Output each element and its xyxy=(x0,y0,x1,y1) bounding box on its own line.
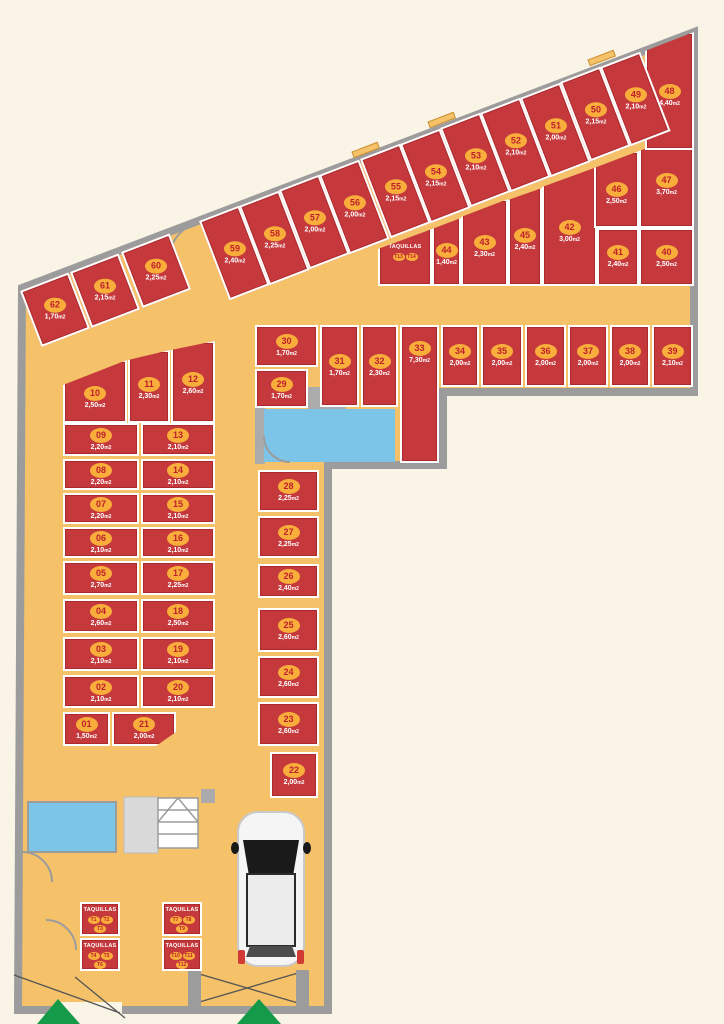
storage-unit-03: 03 2,10m2 xyxy=(63,637,139,671)
unit-size: 2,15m2 xyxy=(95,295,116,303)
storage-unit-18: 18 2,50m2 xyxy=(141,599,215,633)
unit-number-badge: 22 xyxy=(283,763,305,778)
unit-number-badge: 15 xyxy=(167,497,189,512)
unit-size: 2,40m2 xyxy=(515,244,536,252)
locker-tag-badge: T7 xyxy=(170,916,182,924)
unit-number-badge: 61 xyxy=(94,279,116,294)
storage-unit-10: 10 2,50m2 xyxy=(63,360,127,423)
unit-number-badge: 34 xyxy=(449,344,471,359)
storage-unit-02: 02 2,10m2 xyxy=(63,675,139,708)
storage-unit-16: 16 2,10m2 xyxy=(141,527,215,558)
unit-size: 2,25m2 xyxy=(146,275,167,283)
unit-number-badge: 21 xyxy=(133,717,155,732)
locker-tags: T7T8T9 xyxy=(164,916,200,933)
locker-tag-badge: T5 xyxy=(101,952,113,960)
unit-size: 2,00m2 xyxy=(284,779,305,787)
unit-number-badge: 26 xyxy=(278,569,300,584)
unit-number-badge: 24 xyxy=(278,665,300,680)
locker-tag-badge: T2 xyxy=(101,916,113,924)
unit-size: 2,60m2 xyxy=(278,634,299,642)
unit-size: 1,70m2 xyxy=(276,350,297,358)
unit-size: 2,60m2 xyxy=(91,620,112,628)
unit-number-badge: 53 xyxy=(464,148,486,163)
unit-number-badge: 37 xyxy=(577,344,599,359)
unit-number-badge: 40 xyxy=(656,245,678,260)
unit-size: 1,70m2 xyxy=(45,314,66,322)
unit-size: 2,50m2 xyxy=(606,198,627,206)
unit-number-badge: 30 xyxy=(276,334,298,349)
unit-number-badge: 35 xyxy=(491,344,513,359)
unit-number-badge: 51 xyxy=(544,118,566,133)
storage-unit-01: 01 1,50m2 xyxy=(63,712,110,746)
unit-size: 2,10m2 xyxy=(168,696,189,704)
locker-tag-badge: T4 xyxy=(88,952,100,960)
unit-size: 2,25m2 xyxy=(278,495,299,503)
unit-size: 2,60m2 xyxy=(278,728,299,736)
unit-number-badge: 43 xyxy=(474,235,496,250)
unit-size: 2,10m2 xyxy=(168,513,189,521)
unit-size: 2,00m2 xyxy=(304,226,325,234)
unit-number-badge: 32 xyxy=(369,354,391,369)
storage-unit-32: 32 2,30m2 xyxy=(361,325,398,407)
storage-unit-23: 23 2,60m2 xyxy=(258,702,319,746)
storage-unit-09: 09 2,20m2 xyxy=(63,423,139,456)
storage-unit-15: 15 2,10m2 xyxy=(141,493,215,524)
unit-size: 2,50m2 xyxy=(85,402,106,410)
unit-size: 7,30m2 xyxy=(409,357,430,365)
storage-unit-40: 40 2,50m2 xyxy=(639,228,694,286)
unit-size: 2,10m2 xyxy=(662,360,683,368)
storage-unit-22: 22 2,00m2 xyxy=(270,752,318,798)
locker-tag-badge: T9 xyxy=(176,925,188,933)
storage-unit-33: 33 7,30m2 xyxy=(400,325,439,463)
unit-number-badge: 31 xyxy=(329,354,351,369)
storage-unit-44: 44 1,40m2 xyxy=(432,217,461,286)
unit-size: 2,10m2 xyxy=(465,164,486,172)
unit-number-badge: 20 xyxy=(167,680,189,695)
unit-number-badge: 19 xyxy=(167,642,189,657)
unit-number-badge: 28 xyxy=(278,479,300,494)
storage-unit-25: 25 2,60m2 xyxy=(258,608,319,652)
unit-size: 2,25m2 xyxy=(278,541,299,549)
storage-unit-41: 41 2,40m2 xyxy=(597,228,639,286)
unit-size: 2,15m2 xyxy=(425,180,446,188)
storage-unit-13: 13 2,10m2 xyxy=(141,423,215,456)
unit-number-badge: 10 xyxy=(84,386,106,401)
unit-number-badge: 23 xyxy=(278,712,300,727)
unit-size: 2,10m2 xyxy=(168,658,189,666)
unit-number-badge: 55 xyxy=(384,179,406,194)
storage-unit-14: 14 2,10m2 xyxy=(141,459,215,490)
storage-unit-05: 05 2,70m2 xyxy=(63,561,139,595)
locker-tag-badge: T6 xyxy=(94,961,106,969)
unit-number-badge: 25 xyxy=(278,618,300,633)
unit-size: 2,30m2 xyxy=(139,393,160,401)
unit-number-badge: 13 xyxy=(167,428,189,443)
unit-number-badge: 04 xyxy=(90,604,112,619)
locker-tags: T10T11T12 xyxy=(164,952,200,969)
unit-number-badge: 59 xyxy=(223,241,245,256)
unit-number-badge: 49 xyxy=(624,87,646,102)
lockers-title: TAQUILLAS xyxy=(166,943,199,950)
storage-unit-07: 07 2,20m2 xyxy=(63,493,139,524)
unit-number-badge: 52 xyxy=(504,133,526,148)
unit-number-badge: 39 xyxy=(662,344,684,359)
unit-size: 1,70m2 xyxy=(329,370,350,378)
storage-unit-11: 11 2,30m2 xyxy=(128,350,170,423)
storage-unit-04: 04 2,60m2 xyxy=(63,599,139,633)
unit-size: 2,50m2 xyxy=(168,620,189,628)
unit-size: 2,00m2 xyxy=(344,211,365,219)
storage-unit-39: 39 2,10m2 xyxy=(652,325,693,387)
unit-size: 2,10m2 xyxy=(91,658,112,666)
unit-size: 2,40m2 xyxy=(278,585,299,593)
storage-unit-46: 46 2,50m2 xyxy=(594,151,639,228)
unit-size: 4,40m2 xyxy=(659,100,680,108)
lockers-title: TAQUILLAS xyxy=(84,907,117,914)
locker-tag-badge: T1 xyxy=(88,916,100,924)
unit-number-badge: 45 xyxy=(514,228,536,243)
unit-size: 2,00m2 xyxy=(578,360,599,368)
unit-size: 2,10m2 xyxy=(91,547,112,555)
storage-unit-35: 35 2,00m2 xyxy=(481,325,523,387)
unit-size: 2,60m2 xyxy=(278,681,299,689)
unit-number-badge: 09 xyxy=(90,428,112,443)
unit-number-badge: 58 xyxy=(263,226,285,241)
storage-unit-17: 17 2,25m2 xyxy=(141,561,215,595)
unit-number-badge: 18 xyxy=(167,604,189,619)
storage-unit-28: 28 2,25m2 xyxy=(258,470,319,512)
locker-tag-badge: T12 xyxy=(176,961,188,969)
unit-number-badge: 50 xyxy=(584,102,606,117)
unit-size: 1,40m2 xyxy=(436,259,457,267)
storage-unit-31: 31 1,70m2 xyxy=(320,325,359,407)
locker-tag-badge: T11 xyxy=(183,952,195,960)
unit-size: 2,10m2 xyxy=(91,696,112,704)
unit-size: 2,25m2 xyxy=(264,242,285,250)
lockers-title: TAQUILLAS xyxy=(166,907,199,914)
storage-unit-27: 27 2,25m2 xyxy=(258,516,319,558)
unit-number-badge: 14 xyxy=(167,463,189,478)
unit-number-badge: 38 xyxy=(619,344,641,359)
unit-size: 2,10m2 xyxy=(168,444,189,452)
lockers-box: TAQUILLAS T10T11T12 xyxy=(162,938,202,971)
locker-tag-badge: T13 xyxy=(393,253,405,261)
unit-size: 3,70m2 xyxy=(656,189,677,197)
unit-number-badge: 03 xyxy=(90,642,112,657)
lockers-title: TAQUILLAS xyxy=(389,244,422,251)
unit-size: 2,00m2 xyxy=(134,733,155,741)
unit-size: 2,00m2 xyxy=(535,360,556,368)
storage-unit-37: 37 2,00m2 xyxy=(568,325,608,387)
unit-size: 2,25m2 xyxy=(168,582,189,590)
locker-tag-badge: T3 xyxy=(94,925,106,933)
unit-size: 2,30m2 xyxy=(474,251,495,259)
lockers-title: TAQUILLAS xyxy=(84,943,117,950)
unit-size: 2,40m2 xyxy=(608,261,629,269)
unit-size: 2,00m2 xyxy=(620,360,641,368)
storage-unit-21: 21 2,00m2 xyxy=(112,712,176,746)
unit-number-badge: 08 xyxy=(90,463,112,478)
unit-number-badge: 56 xyxy=(343,195,365,210)
unit-number-badge: 57 xyxy=(303,210,325,225)
unit-number-badge: 36 xyxy=(535,344,557,359)
storage-unit-34: 34 2,00m2 xyxy=(441,325,479,387)
unit-size: 2,20m2 xyxy=(91,513,112,521)
locker-tags: T4T5T6 xyxy=(82,952,118,969)
storage-unit-43: 43 2,30m2 xyxy=(461,199,508,286)
unit-number-badge: 60 xyxy=(145,259,167,274)
unit-size: 2,00m2 xyxy=(545,134,566,142)
lockers-box: TAQUILLAS T4T5T6 xyxy=(80,938,120,971)
lockers-box: TAQUILLAS T1T2T3 xyxy=(80,902,120,936)
storage-unit-08: 08 2,20m2 xyxy=(63,459,139,490)
unit-size: 1,50m2 xyxy=(76,733,97,741)
lockers-box: TAQUILLAS T7T8T9 xyxy=(162,902,202,936)
unit-number-badge: 33 xyxy=(409,341,431,356)
storage-unit-42: 42 3,00m2 xyxy=(542,166,597,286)
unit-number-badge: 62 xyxy=(44,298,66,313)
unit-size: 2,10m2 xyxy=(625,103,646,111)
unit-size: 2,15m2 xyxy=(585,118,606,126)
unit-number-badge: 46 xyxy=(606,182,628,197)
unit-size: 2,20m2 xyxy=(91,444,112,452)
storage-unit-19: 19 2,10m2 xyxy=(141,637,215,671)
unit-size: 2,20m2 xyxy=(91,479,112,487)
unit-number-badge: 29 xyxy=(271,377,293,392)
storage-unit-26: 26 2,40m2 xyxy=(258,564,319,598)
unit-number-badge: 05 xyxy=(90,566,112,581)
floor-plan-canvas: 01 1,50m2 02 2,10m2 03 2,10m2 04 2,60m2 … xyxy=(0,0,724,1024)
unit-size: 2,10m2 xyxy=(505,149,526,157)
unit-number-badge: 54 xyxy=(424,164,446,179)
unit-size: 2,10m2 xyxy=(168,547,189,555)
unit-number-badge: 47 xyxy=(656,173,678,188)
unit-size: 1,70m2 xyxy=(271,393,292,401)
unit-size: 3,00m2 xyxy=(559,236,580,244)
unit-size: 2,50m2 xyxy=(656,261,677,269)
unit-number-badge: 01 xyxy=(76,717,98,732)
storage-unit-36: 36 2,00m2 xyxy=(525,325,566,387)
unit-size: 2,60m2 xyxy=(183,388,204,396)
storage-unit-29: 29 1,70m2 xyxy=(255,369,308,408)
units-layer: 01 1,50m2 02 2,10m2 03 2,10m2 04 2,60m2 … xyxy=(0,0,724,1024)
storage-unit-24: 24 2,60m2 xyxy=(258,656,319,698)
unit-number-badge: 41 xyxy=(607,245,629,260)
unit-number-badge: 11 xyxy=(138,377,160,392)
storage-unit-20: 20 2,10m2 xyxy=(141,675,215,708)
unit-size: 2,15m2 xyxy=(385,195,406,203)
locker-tag-badge: T8 xyxy=(183,916,195,924)
unit-size: 2,40m2 xyxy=(224,257,245,265)
unit-number-badge: 44 xyxy=(436,243,458,258)
unit-number-badge: 02 xyxy=(90,680,112,695)
locker-tag-badge: T14 xyxy=(406,253,418,261)
storage-unit-06: 06 2,10m2 xyxy=(63,527,139,558)
unit-number-badge: 06 xyxy=(90,531,112,546)
locker-tags: T13T14 xyxy=(391,253,420,261)
unit-size: 2,30m2 xyxy=(369,370,390,378)
unit-number-badge: 42 xyxy=(559,220,581,235)
locker-tags: T1T2T3 xyxy=(82,916,118,933)
storage-unit-12: 12 2,60m2 xyxy=(171,341,215,423)
unit-number-badge: 12 xyxy=(182,372,204,387)
unit-size: 2,10m2 xyxy=(168,479,189,487)
unit-number-badge: 27 xyxy=(278,525,300,540)
unit-number-badge: 17 xyxy=(167,566,189,581)
unit-number-badge: 07 xyxy=(90,497,112,512)
storage-unit-45: 45 2,40m2 xyxy=(508,187,542,286)
unit-number-badge: 16 xyxy=(167,531,189,546)
locker-tag-badge: T10 xyxy=(170,952,182,960)
unit-size: 2,00m2 xyxy=(450,360,471,368)
storage-unit-38: 38 2,00m2 xyxy=(610,325,650,387)
storage-unit-30: 30 1,70m2 xyxy=(255,325,318,367)
unit-number-badge: 48 xyxy=(659,84,681,99)
unit-size: 2,70m2 xyxy=(91,582,112,590)
unit-size: 2,00m2 xyxy=(492,360,513,368)
